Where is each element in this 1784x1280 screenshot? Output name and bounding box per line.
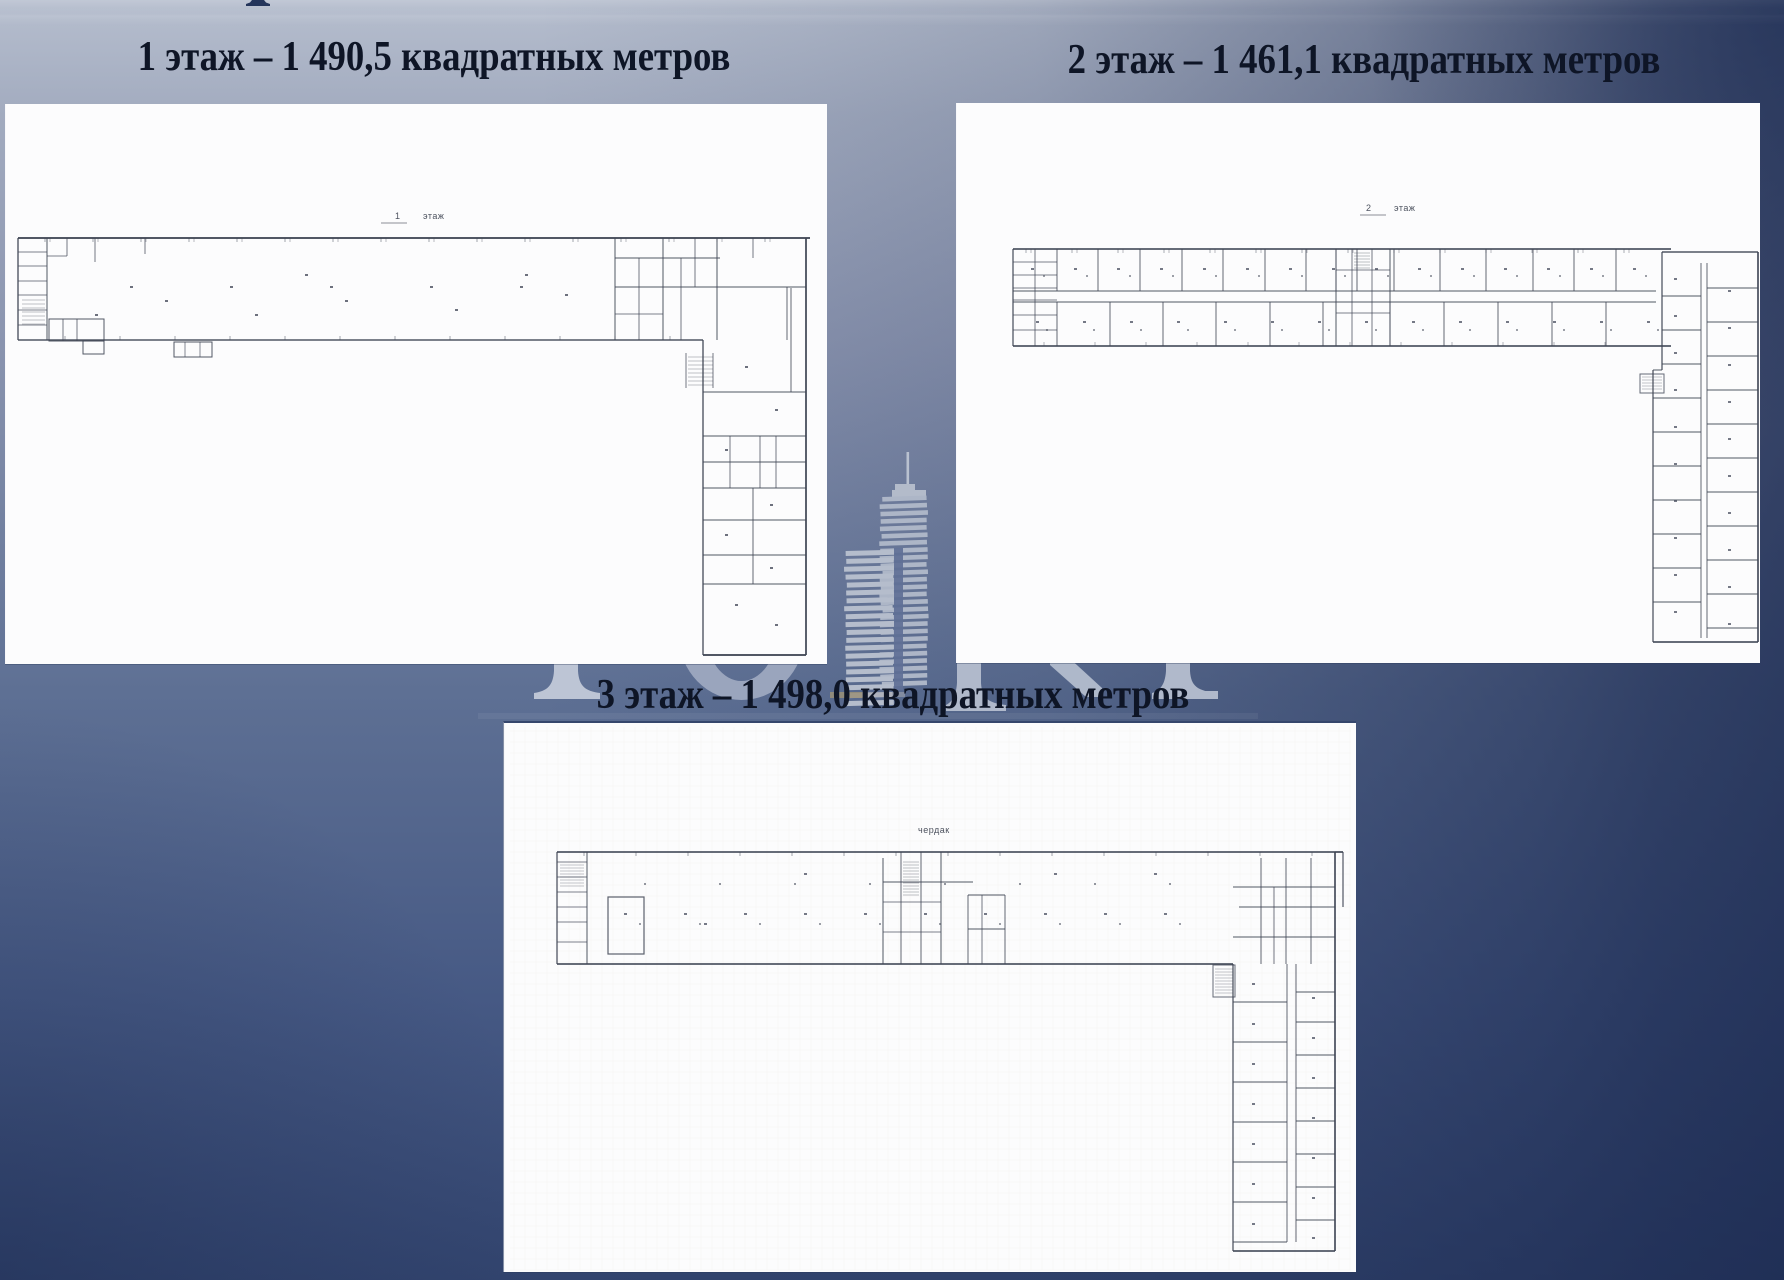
svg-text:этаж: этаж <box>1394 203 1415 213</box>
svg-text:этаж: этаж <box>423 211 444 221</box>
svg-text:2: 2 <box>1366 203 1371 213</box>
svg-text:1: 1 <box>395 211 400 221</box>
svg-text:чердак: чердак <box>918 825 950 835</box>
